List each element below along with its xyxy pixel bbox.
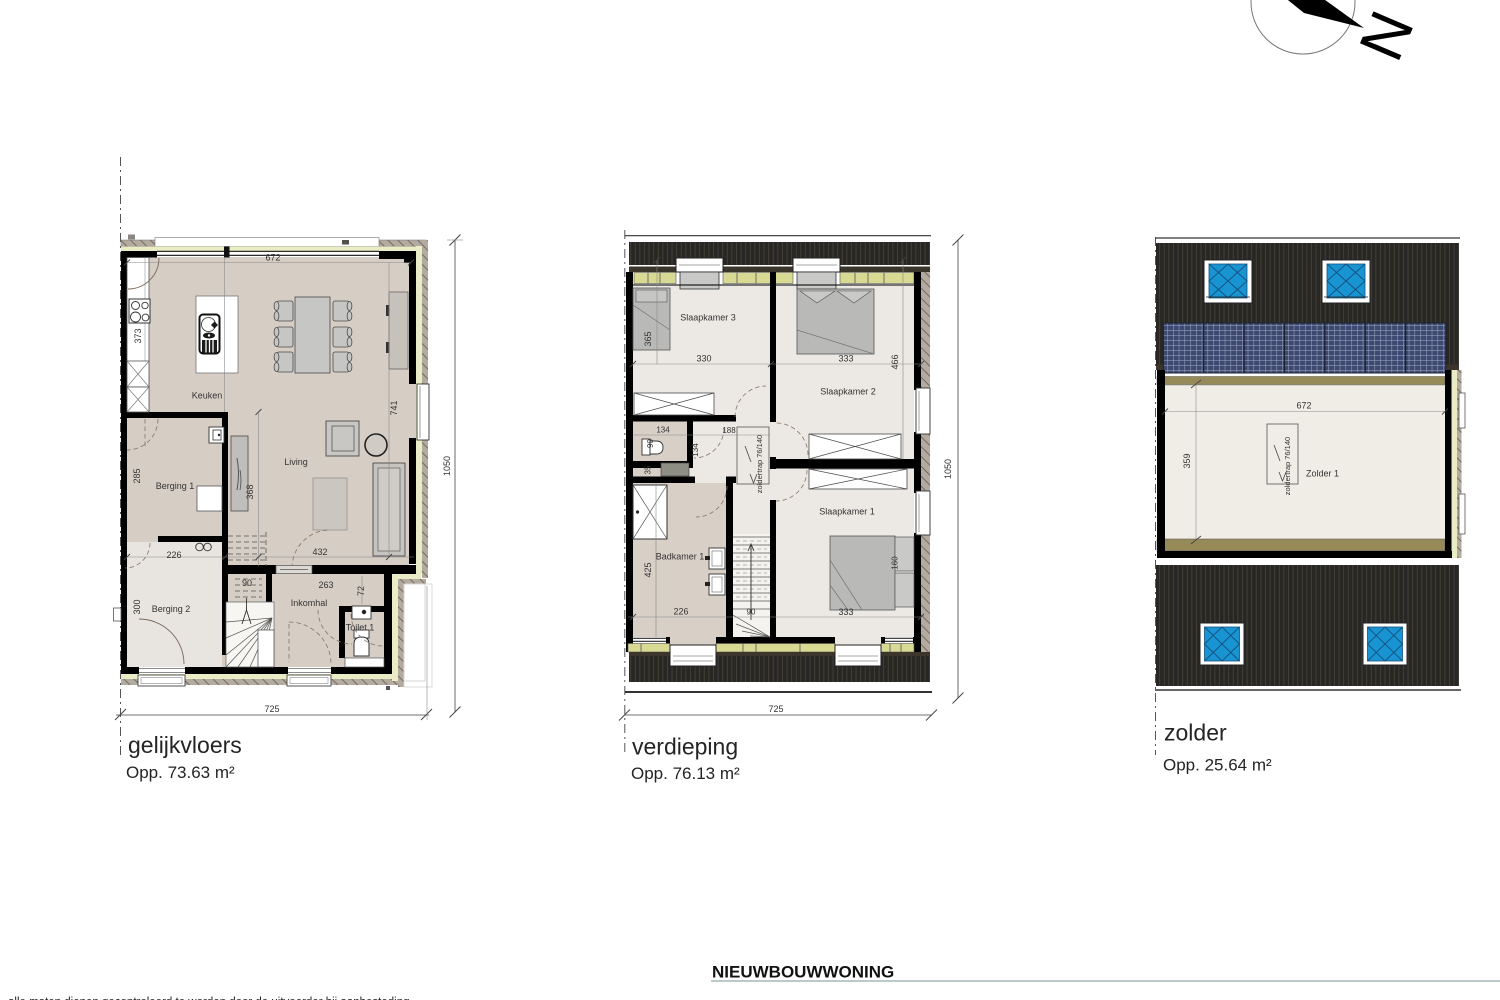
svg-text:Opp. 73.63 m²: Opp. 73.63 m² [126,763,235,782]
svg-text:Berging 2: Berging 2 [152,604,191,614]
svg-text:Toilet 1: Toilet 1 [346,623,375,633]
svg-text:zoldertrap 76/140: zoldertrap 76/140 [755,435,764,493]
svg-text:725: 725 [264,704,279,714]
svg-text:725: 725 [768,704,783,714]
svg-text:226: 226 [673,607,688,617]
svg-text:188: 188 [722,426,736,435]
svg-text:226: 226 [166,550,181,560]
svg-text:672: 672 [1296,401,1311,411]
svg-text:160: 160 [891,556,900,570]
svg-text:365: 365 [643,331,653,346]
svg-text:alle maten dienen gecontroleer: alle maten dienen gecontroleerd te worde… [8,997,410,1000]
svg-text:466: 466 [890,354,900,369]
svg-text:263: 263 [318,580,333,590]
svg-text:359: 359 [1182,453,1192,468]
svg-text:Living: Living [284,457,308,467]
svg-text:35: 35 [644,465,653,474]
svg-text:gelijkvloers: gelijkvloers [128,732,242,758]
svg-text:Inkomhal: Inkomhal [291,598,328,608]
svg-text:1050: 1050 [943,459,953,479]
svg-text:NIEUWBOUWWONING: NIEUWBOUWWONING [712,963,894,982]
svg-text:Zolder 1: Zolder 1 [1306,469,1339,479]
svg-text:Badkamer 1: Badkamer 1 [656,552,705,562]
svg-text:333: 333 [838,354,853,364]
svg-text:90: 90 [646,439,655,448]
svg-text:Slaapkamer 2: Slaapkamer 2 [820,387,876,397]
svg-text:432: 432 [312,547,327,557]
svg-text:373: 373 [133,328,143,343]
svg-text:300: 300 [132,599,142,614]
svg-text:Opp. 76.13 m²: Opp. 76.13 m² [631,764,740,783]
svg-text:Slaapkamer 1: Slaapkamer 1 [819,507,875,517]
svg-text:1050: 1050 [442,456,452,476]
svg-text:330: 330 [696,354,711,364]
svg-text:N: N [1345,1,1426,69]
svg-text:741: 741 [389,400,399,415]
svg-text:zolder: zolder [1164,720,1227,746]
svg-text:Keuken: Keuken [192,391,223,401]
svg-text:Berging 1: Berging 1 [156,481,195,491]
svg-text:368: 368 [245,484,255,499]
svg-text:90: 90 [242,578,252,588]
svg-text:134: 134 [656,426,670,435]
svg-text:Slaapkamer 3: Slaapkamer 3 [680,313,736,323]
svg-text:verdieping: verdieping [632,734,738,760]
svg-text:333: 333 [838,607,853,617]
svg-text:134: 134 [691,443,700,457]
svg-text:Opp. 25.64 m²: Opp. 25.64 m² [1163,756,1272,775]
svg-text:425: 425 [643,562,653,577]
svg-text:672: 672 [265,253,280,263]
svg-text:90: 90 [747,608,756,617]
svg-text:285: 285 [132,468,142,483]
svg-text:zoldertrap 76/140: zoldertrap 76/140 [1283,437,1292,495]
svg-text:72: 72 [356,586,366,596]
